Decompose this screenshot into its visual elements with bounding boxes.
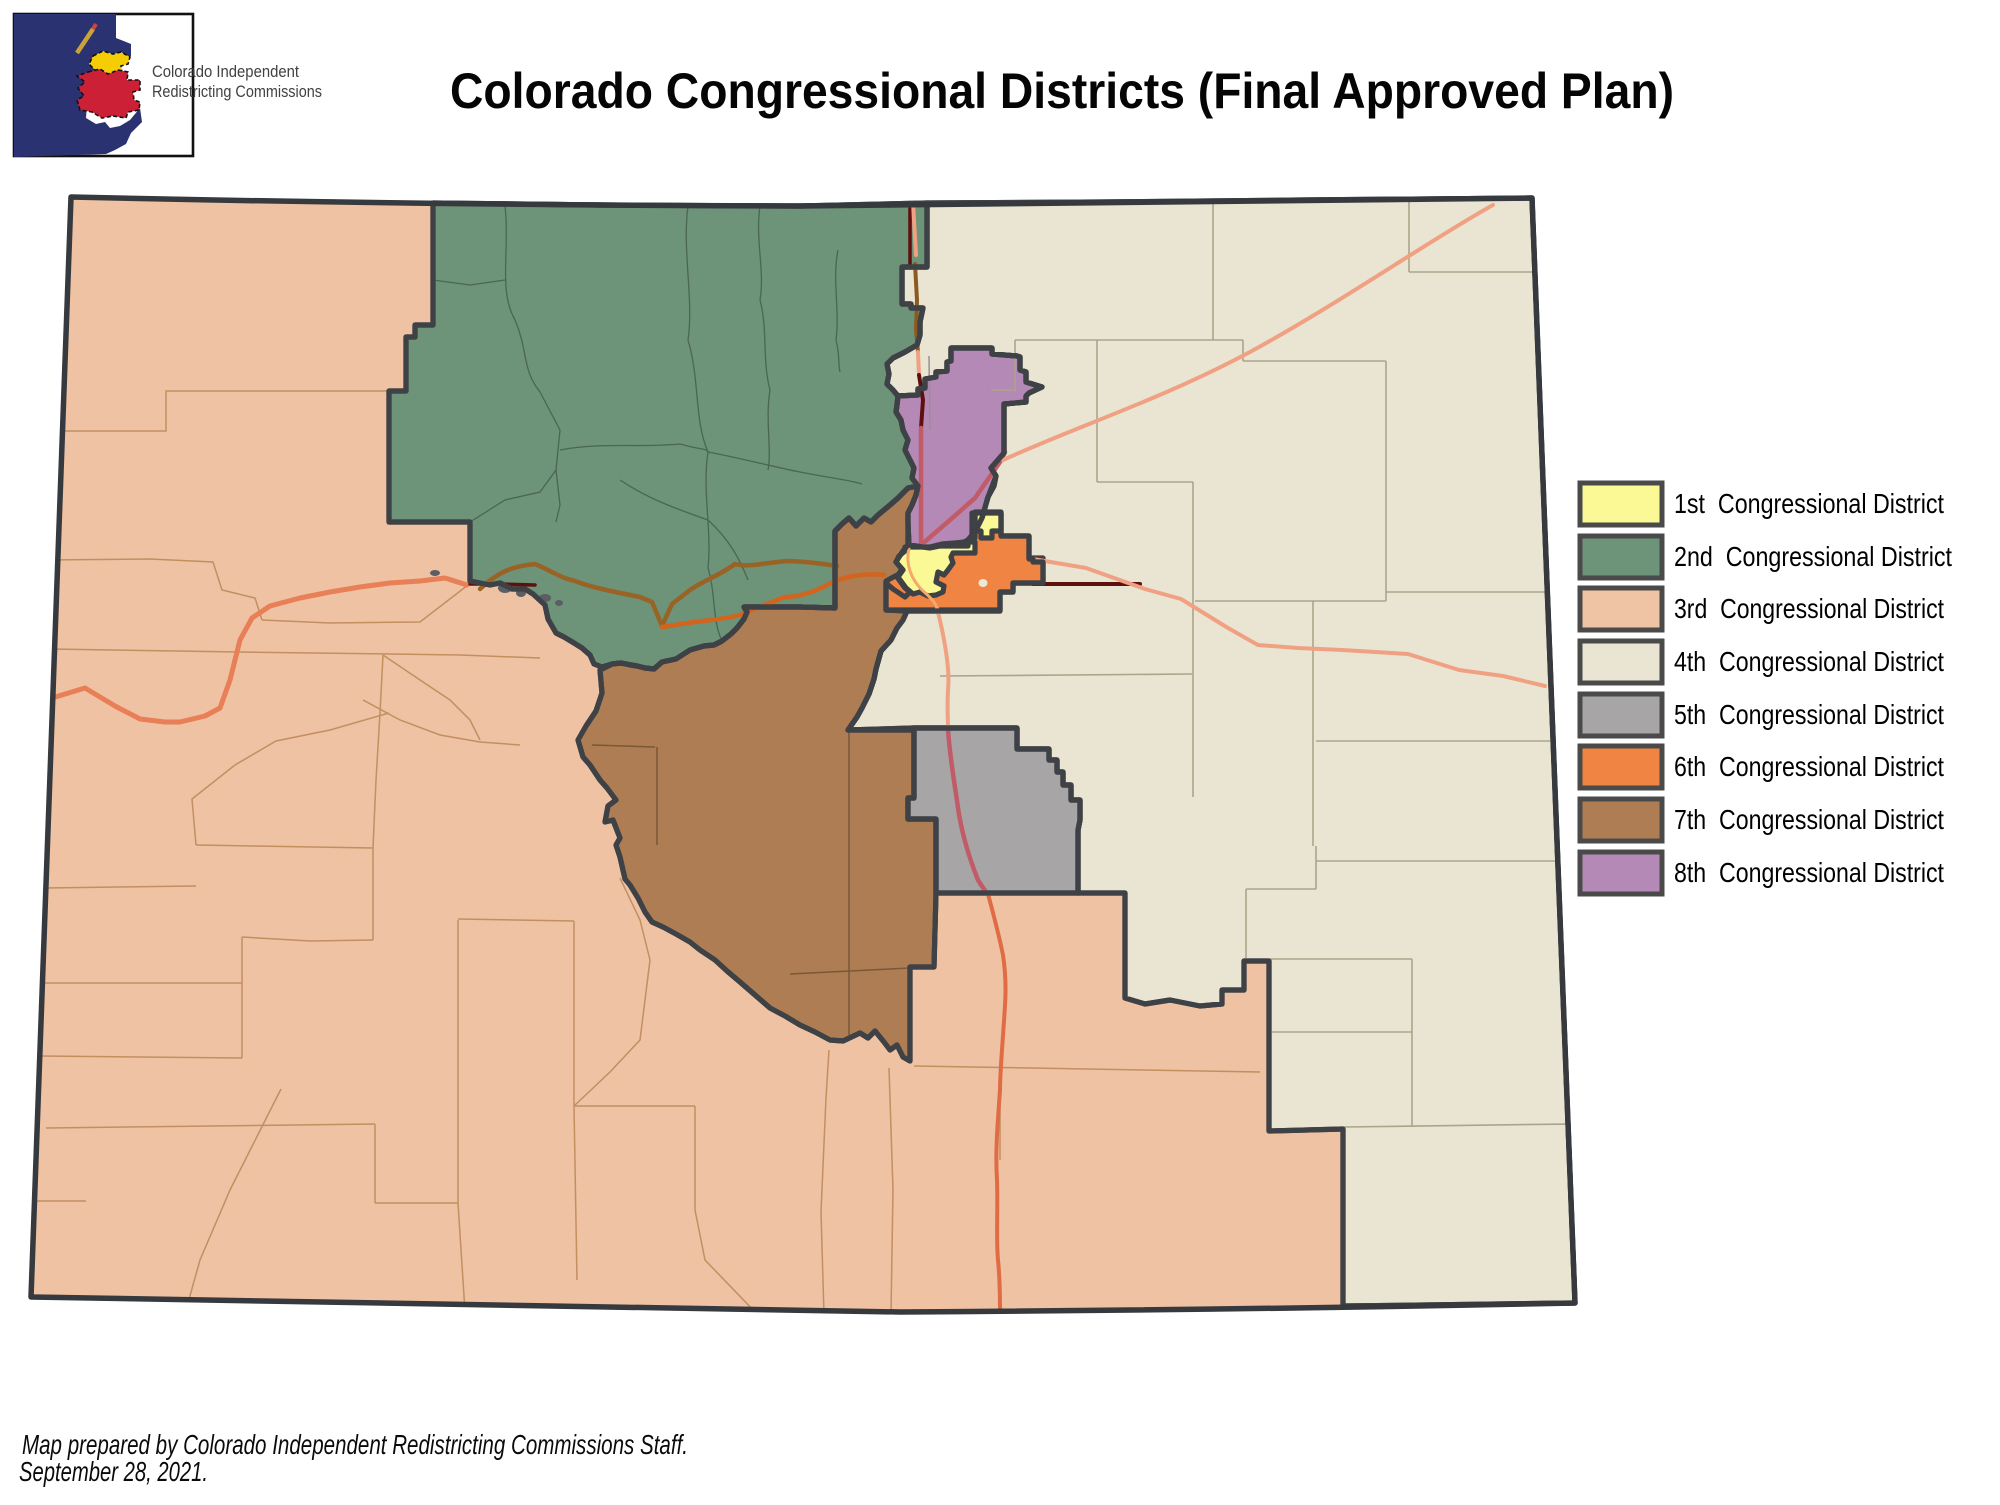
svg-text:5th Congressional District: 5th Congressional District [1674,699,1944,730]
svg-text:September 28, 2021.: September 28, 2021. [19,1456,208,1487]
svg-text:1st Congressional District: 1st Congressional District [1674,488,1944,519]
svg-text:Colorado Congressional Distric: Colorado Congressional Districts (Final … [450,63,1674,119]
svg-text:6th Congressional District: 6th Congressional District [1674,751,1944,782]
svg-text:3rd Congressional District: 3rd Congressional District [1674,593,1944,624]
svg-text:2nd Congressional District: 2nd Congressional District [1674,541,1952,572]
svg-text:4th Congressional District: 4th Congressional District [1674,646,1944,677]
svg-text:Redistricting Commissions: Redistricting Commissions [152,82,322,101]
svg-text:8th Congressional District: 8th Congressional District [1674,857,1944,888]
svg-text:7th Congressional District: 7th Congressional District [1674,804,1944,835]
svg-text:Colorado Independent: Colorado Independent [152,62,299,81]
